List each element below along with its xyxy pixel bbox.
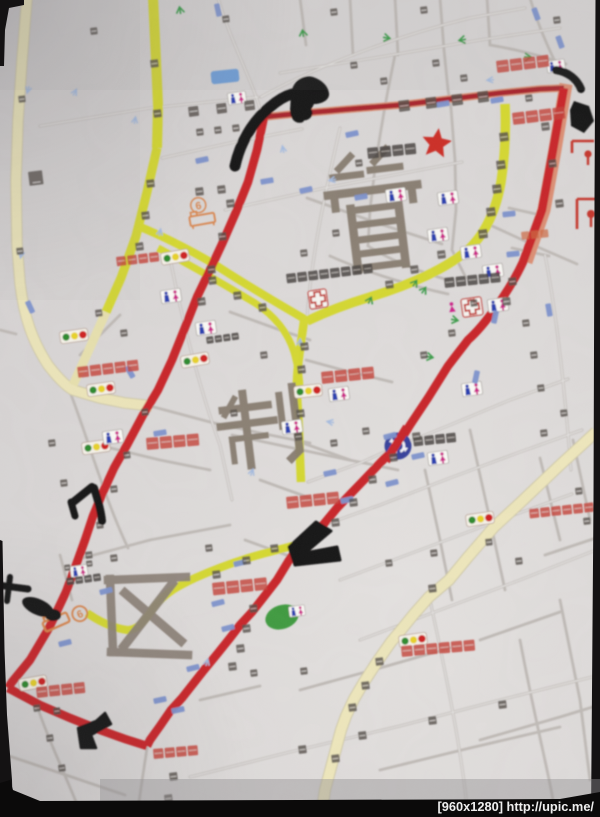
svg-text:[960x1280] http://upic.me/: [960x1280] http://upic.me/ [438, 799, 595, 814]
